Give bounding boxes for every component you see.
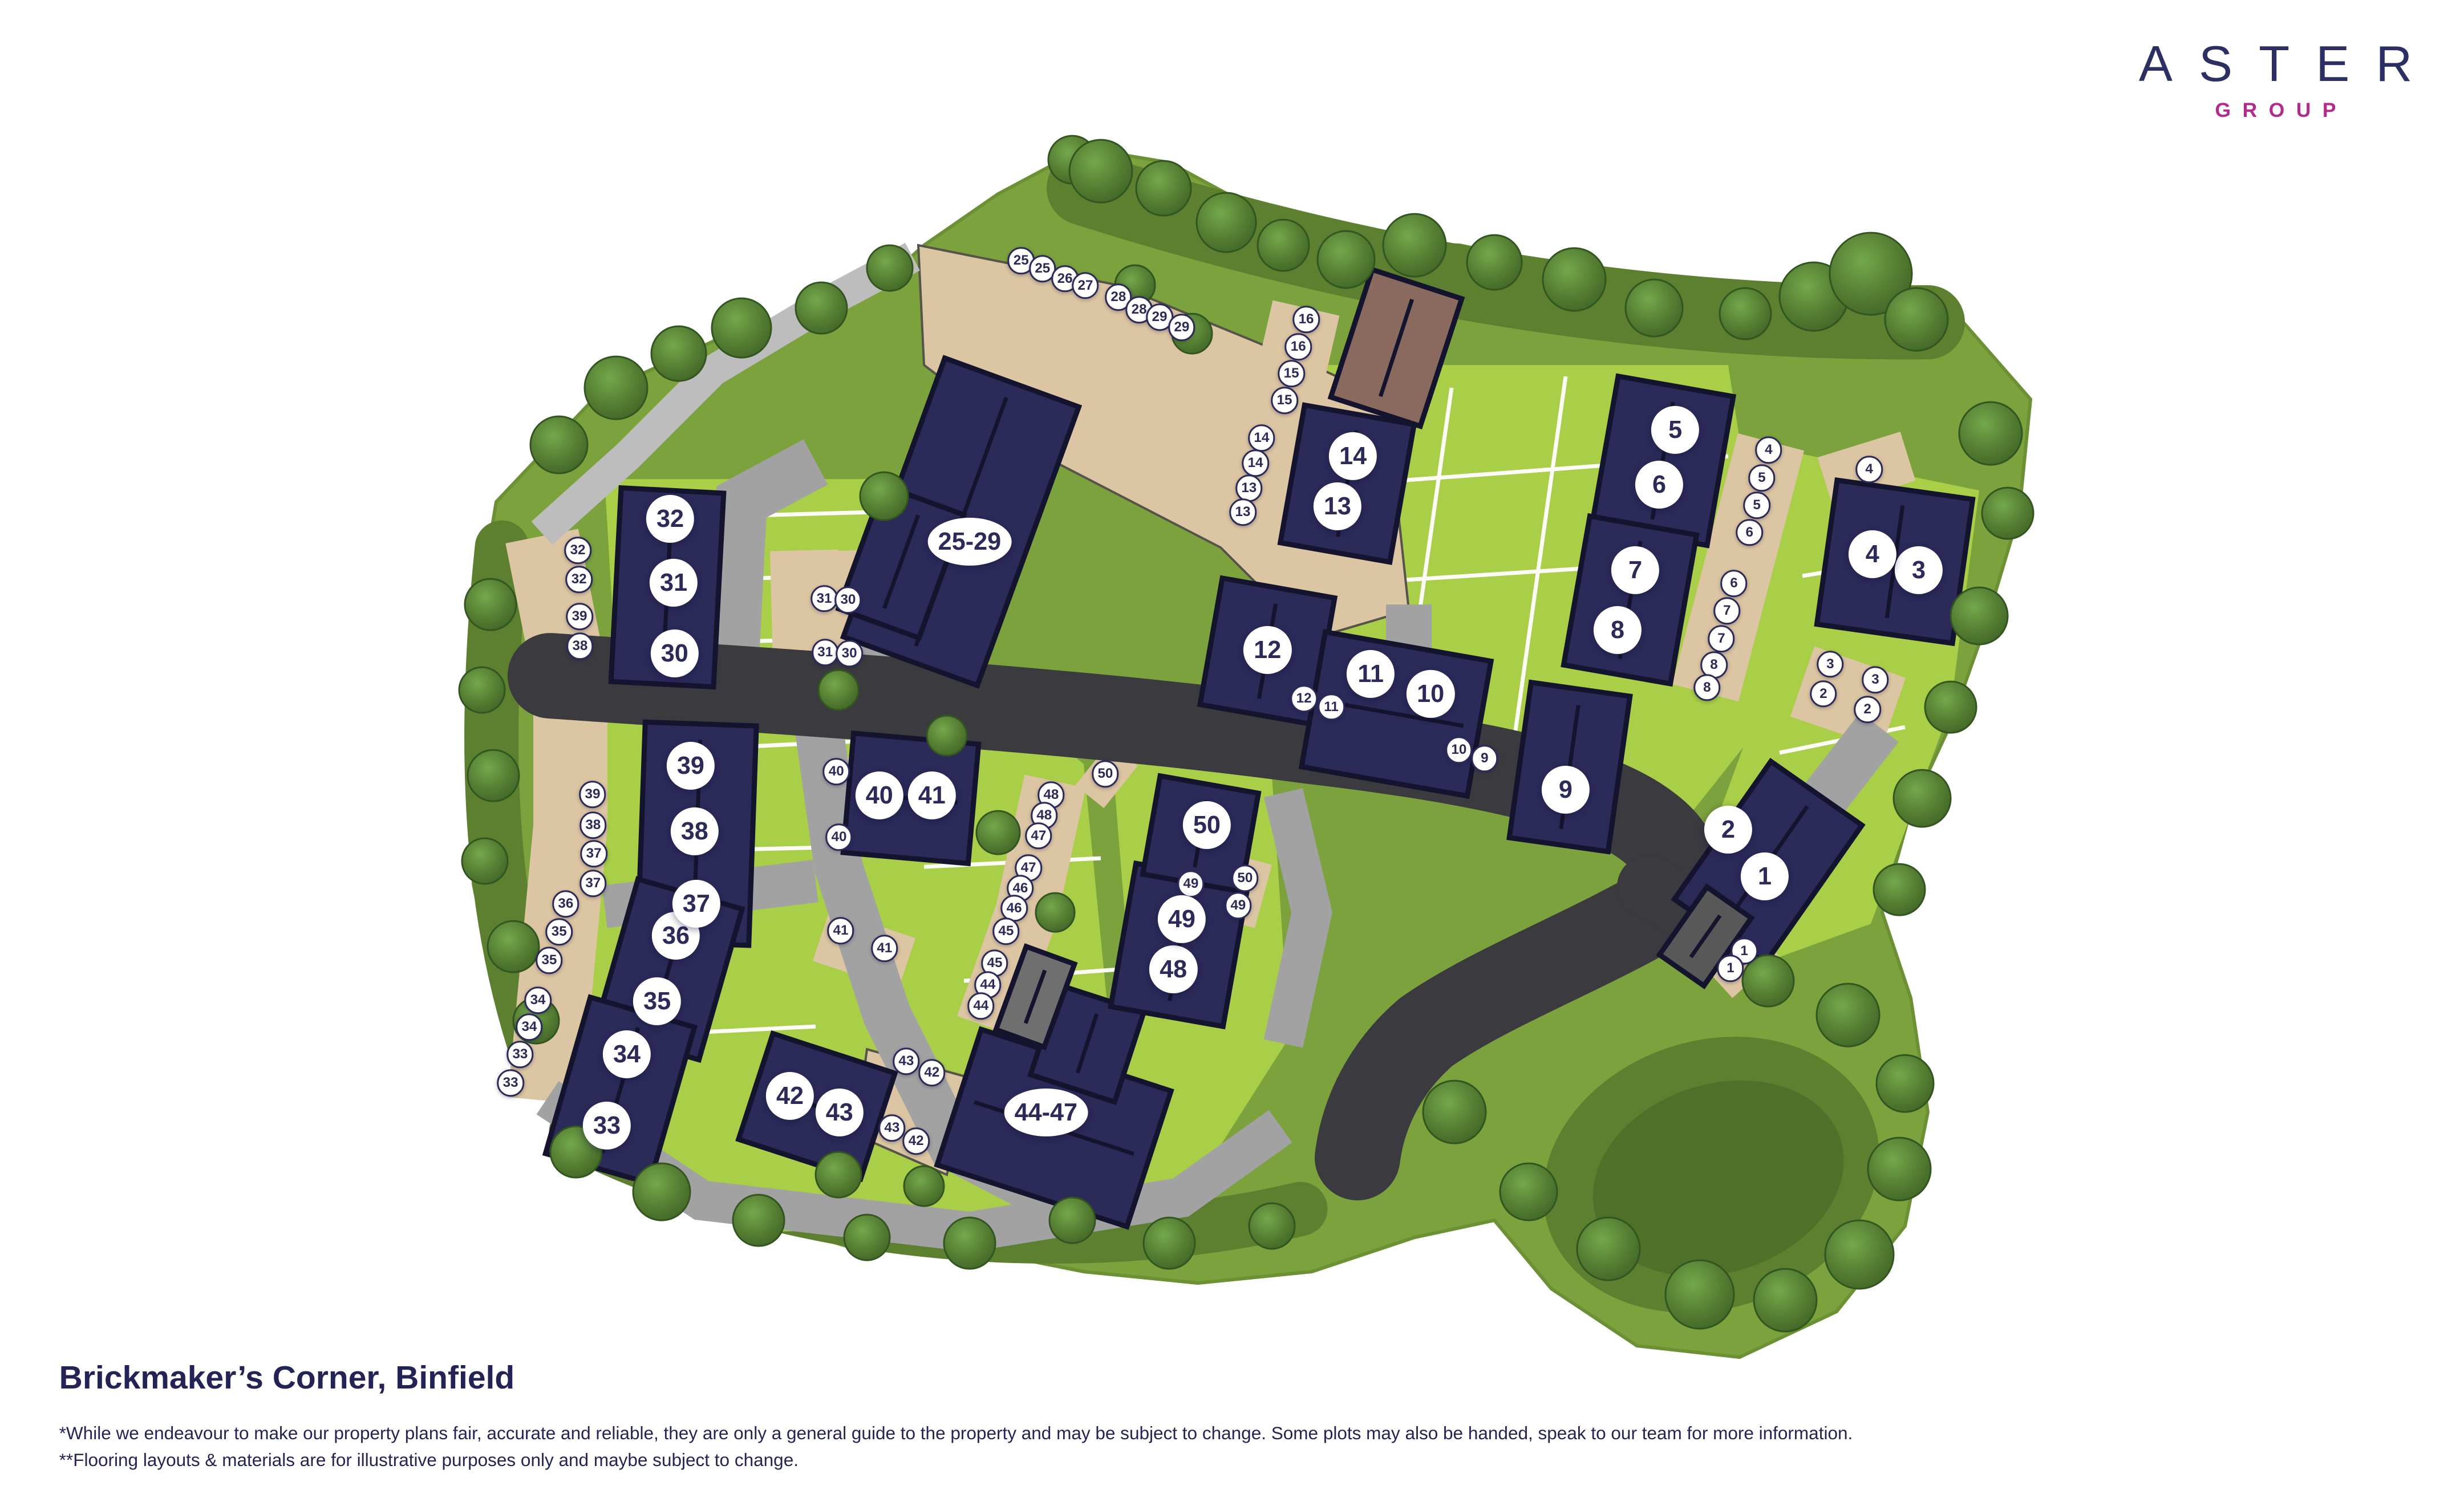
plot-marker-44-47[interactable]: 44-47	[1004, 1089, 1088, 1136]
parking-marker-32: 32	[564, 537, 591, 564]
parking-marker-43: 43	[893, 1048, 920, 1075]
plot-marker-39[interactable]: 39	[667, 742, 715, 790]
plot-marker-34[interactable]: 34	[603, 1030, 651, 1078]
disclaimer-line-2: **Flooring layouts & materials are for i…	[59, 1447, 1853, 1473]
parking-marker-40: 40	[822, 758, 850, 785]
parking-marker-30: 30	[834, 586, 862, 614]
parking-marker-5: 5	[1748, 464, 1776, 492]
parking-marker-16: 16	[1284, 333, 1312, 360]
plot-marker-48[interactable]: 48	[1149, 945, 1197, 993]
plot-marker-14[interactable]: 14	[1329, 432, 1377, 480]
plot-marker-42[interactable]: 42	[766, 1072, 814, 1120]
parking-marker-43: 43	[878, 1114, 906, 1142]
parking-marker-45: 45	[992, 917, 1020, 945]
parking-marker-34: 34	[516, 1013, 543, 1041]
plot-marker-32[interactable]: 32	[646, 495, 694, 543]
plot-marker-40[interactable]: 40	[856, 772, 903, 819]
parking-marker-41: 41	[871, 935, 898, 962]
plot-marker-9[interactable]: 9	[1542, 766, 1590, 814]
plot-marker-49[interactable]: 49	[1158, 895, 1206, 943]
site-plan-map: 2525262728282929161615151414131332323938…	[0, 0, 2464, 1490]
parking-marker-4: 4	[1855, 456, 1883, 483]
parking-marker-27: 27	[1072, 272, 1099, 299]
parking-marker-5: 5	[1743, 492, 1770, 519]
plot-marker-6[interactable]: 6	[1635, 461, 1683, 509]
parking-marker-9: 9	[1471, 745, 1498, 772]
parking-marker-34: 34	[524, 986, 552, 1014]
parking-marker-42: 42	[918, 1059, 946, 1086]
plot-marker-2[interactable]: 2	[1704, 806, 1752, 854]
parking-marker-6: 6	[1736, 519, 1763, 546]
parking-marker-13: 13	[1235, 474, 1263, 502]
parking-marker-3: 3	[1862, 666, 1889, 693]
plot-marker-12[interactable]: 12	[1243, 626, 1291, 674]
plot-marker-11[interactable]: 11	[1347, 650, 1395, 698]
parking-marker-40: 40	[825, 823, 853, 851]
disclaimer-line-1: *While we endeavour to make our property…	[59, 1420, 1853, 1447]
parking-marker-6: 6	[1720, 570, 1748, 597]
parking-marker-31: 31	[810, 585, 838, 612]
parking-marker-38: 38	[579, 811, 607, 839]
parking-marker-1: 1	[1717, 955, 1744, 982]
plot-marker-50[interactable]: 50	[1183, 801, 1231, 849]
plot-marker-25-29[interactable]: 25-29	[928, 518, 1012, 566]
plot-marker-4[interactable]: 4	[1849, 530, 1896, 578]
plot-marker-43[interactable]: 43	[816, 1089, 864, 1136]
parking-marker-33: 33	[497, 1069, 524, 1097]
plot-marker-35[interactable]: 35	[633, 977, 681, 1025]
parking-marker-38: 38	[566, 632, 594, 660]
parking-marker-15: 15	[1271, 387, 1298, 414]
parking-marker-2: 2	[1854, 696, 1881, 723]
parking-marker-15: 15	[1278, 360, 1305, 387]
page-title: Brickmaker’s Corner, Binfield	[59, 1359, 1853, 1396]
plot-marker-8[interactable]: 8	[1594, 606, 1642, 654]
plot-marker-7[interactable]: 7	[1611, 546, 1659, 594]
parking-marker-16: 16	[1292, 306, 1320, 333]
parking-marker-42: 42	[902, 1127, 930, 1155]
plot-marker-30[interactable]: 30	[651, 630, 699, 677]
parking-marker-44: 44	[967, 992, 995, 1020]
parking-marker-49: 49	[1177, 870, 1205, 898]
parking-marker-49: 49	[1225, 892, 1252, 919]
aster-group-logo: ASTER GROUP	[2139, 39, 2412, 120]
plot-marker-41[interactable]: 41	[908, 772, 956, 819]
plot-marker-1[interactable]: 1	[1741, 852, 1789, 900]
parking-marker-29: 29	[1168, 314, 1195, 341]
parking-marker-3: 3	[1817, 651, 1844, 678]
parking-marker-2: 2	[1810, 680, 1837, 708]
parking-marker-8: 8	[1693, 674, 1721, 701]
parking-marker-14: 14	[1248, 424, 1275, 452]
parking-marker-10: 10	[1445, 736, 1473, 764]
plot-marker-13[interactable]: 13	[1314, 482, 1361, 530]
parking-marker-4: 4	[1755, 436, 1782, 464]
site-plan-page: ASTER GROUP	[0, 0, 2464, 1490]
parking-marker-37: 37	[579, 870, 607, 897]
plot-marker-3[interactable]: 3	[1895, 546, 1943, 594]
plot-marker-10[interactable]: 10	[1407, 670, 1454, 718]
parking-marker-7: 7	[1713, 597, 1741, 624]
parking-marker-50: 50	[1231, 864, 1259, 892]
parking-marker-36: 36	[552, 890, 579, 917]
plot-marker-33[interactable]: 33	[583, 1102, 631, 1150]
parking-marker-33: 33	[506, 1041, 534, 1068]
parking-marker-32: 32	[565, 566, 593, 593]
parking-marker-30: 30	[836, 640, 863, 667]
parking-marker-50: 50	[1092, 760, 1119, 787]
parking-marker-35: 35	[545, 918, 573, 945]
plot-marker-37[interactable]: 37	[672, 880, 720, 928]
parking-marker-11: 11	[1318, 693, 1345, 721]
plot-marker-31[interactable]: 31	[650, 559, 698, 607]
logo-subtitle: GROUP	[2139, 100, 2424, 120]
parking-marker-41: 41	[827, 917, 854, 944]
parking-marker-12: 12	[1290, 685, 1318, 712]
parking-marker-14: 14	[1242, 449, 1269, 477]
map-footer: Brickmaker’s Corner, Binfield *While we …	[59, 1359, 1853, 1474]
plot-marker-38[interactable]: 38	[671, 807, 719, 855]
parking-marker-39: 39	[566, 603, 593, 630]
parking-marker-39: 39	[579, 781, 606, 808]
parking-marker-37: 37	[580, 840, 607, 867]
parking-marker-31: 31	[812, 639, 839, 666]
parking-marker-7: 7	[1708, 625, 1735, 652]
plot-marker-5[interactable]: 5	[1651, 406, 1699, 454]
logo-wordmark: ASTER	[2139, 39, 2438, 90]
parking-marker-35: 35	[536, 947, 563, 974]
parking-marker-47: 47	[1025, 822, 1052, 850]
parking-marker-13: 13	[1229, 498, 1257, 526]
markers-layer: 2525262728282929161615151414131332323938…	[0, 0, 2464, 1490]
